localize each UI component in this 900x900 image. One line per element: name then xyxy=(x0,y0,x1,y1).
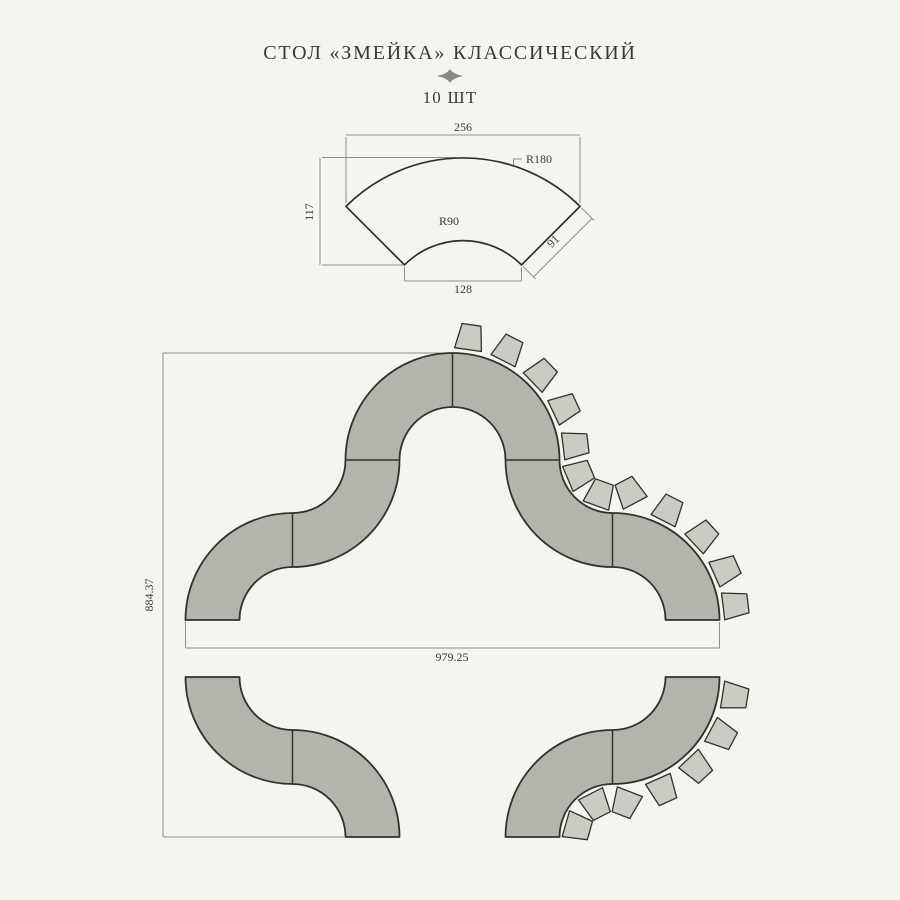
sparkle-icon xyxy=(437,69,463,83)
chair xyxy=(583,479,613,510)
technical-drawing: СТОЛ «ЗМЕЙКА» КЛАССИЧЕСКИЙ 10 ШТ 256 117… xyxy=(0,0,900,900)
dim-height: 117 xyxy=(302,203,316,221)
chair xyxy=(455,324,482,352)
layout-drawing: 884.37 979.25 xyxy=(142,324,749,840)
dim-inner-chord-line xyxy=(405,267,522,281)
chair xyxy=(612,787,642,819)
chair xyxy=(562,433,590,460)
chair xyxy=(615,476,647,509)
chair xyxy=(562,811,592,840)
chair xyxy=(721,681,749,708)
page-title: СТОЛ «ЗМЕЙКА» КЛАССИЧЕСКИЙ xyxy=(263,41,637,64)
chair xyxy=(646,773,677,805)
dim-inner-chord: 128 xyxy=(454,282,472,296)
dim-outer-chord: 256 xyxy=(454,120,472,134)
dim-inner-radius: R90 xyxy=(439,214,459,228)
dim-outer-radius: R180 xyxy=(526,152,552,166)
drawing-canvas: СТОЛ «ЗМЕЙКА» КЛАССИЧЕСКИЙ 10 ШТ 256 117… xyxy=(0,0,900,900)
dim-total-height: 884.37 xyxy=(142,579,156,612)
chair xyxy=(709,556,741,587)
chair xyxy=(722,593,750,620)
segment-part-outline xyxy=(346,158,580,265)
quantity-label: 10 ШТ xyxy=(423,88,478,107)
part-drawing: 256 117 R90 R180 91 128 xyxy=(302,120,594,296)
dim-total-width: 979.25 xyxy=(436,650,469,664)
dim-total-width-line xyxy=(186,622,720,648)
